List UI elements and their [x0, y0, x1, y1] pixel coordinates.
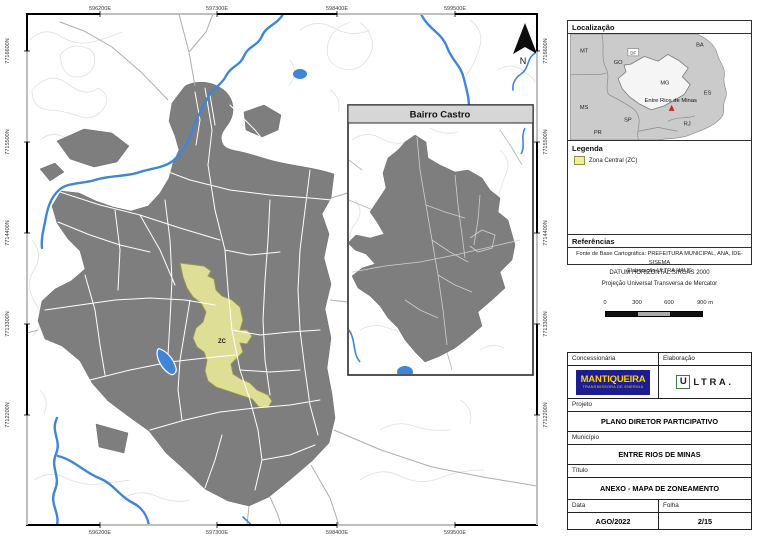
- titulo-value: ANEXO - MAPA DE ZONEAMENTO: [568, 478, 751, 499]
- map-sheet: ZC N Bairro Castro: [0, 0, 768, 543]
- scalebar-tick-0: 0: [603, 300, 606, 306]
- scalebar: [605, 311, 703, 317]
- northing-label: 7715500N: [5, 129, 11, 154]
- northing-label: 7714400N: [5, 220, 11, 245]
- scalebar-tick-600: 600: [664, 300, 674, 306]
- projeto-value: PLANO DIRETOR PARTICIPATIVO: [568, 412, 751, 431]
- easting-label: 599500E: [444, 6, 466, 12]
- state-label-ba: BA: [696, 43, 704, 49]
- state-label-go: GO: [614, 60, 623, 66]
- data-label: Data: [568, 500, 585, 509]
- state-label-mg: MG: [660, 81, 669, 87]
- northing-label: 7714400N: [543, 220, 549, 245]
- state-label-mt: MT: [580, 48, 589, 54]
- northing-label: 7715500N: [543, 129, 549, 154]
- legenda-panel: Legenda Zona Central (ZC): [567, 140, 752, 235]
- mantiqueira-logo-sub: TRANSMISSORA DE ENERGIA: [583, 386, 644, 390]
- state-label-ms: MS: [580, 105, 589, 111]
- legend-item: Zona Central (ZC): [568, 154, 751, 165]
- scalebar-tick-900: 900 m: [697, 300, 713, 306]
- mantiqueira-logo-name: MANTIQUEIRA: [581, 375, 646, 385]
- easting-label: 597300E: [206, 530, 228, 536]
- northing-label: 7713300N: [543, 311, 549, 336]
- legenda-title: Legenda: [568, 141, 751, 154]
- scalebar-segment: [638, 312, 670, 316]
- ultra-logo: U LTRA.: [676, 375, 733, 389]
- northing-label: 7712200N: [543, 402, 549, 427]
- easting-label: 597300E: [206, 6, 228, 12]
- folha-value: 2/15: [659, 517, 751, 526]
- easting-label: 599500E: [444, 530, 466, 536]
- title-block: Concessionária Elaboração MANTIQUEIRA TR…: [567, 352, 752, 530]
- pond: [293, 69, 307, 79]
- easting-label: 596200E: [89, 6, 111, 12]
- state-label-pr: PR: [594, 130, 602, 136]
- northing-label: 7713300N: [5, 311, 11, 336]
- easting-label: 598400E: [326, 530, 348, 536]
- legend-swatch-zona-central: [574, 156, 585, 165]
- northing-label: 7712200N: [5, 402, 11, 427]
- folha-label: Folha: [659, 500, 679, 509]
- north-label: N: [520, 56, 527, 66]
- scalebar-segment: [606, 312, 638, 316]
- scalebar-tick-300: 300: [632, 300, 642, 306]
- state-label-df: DF: [630, 50, 636, 55]
- main-map: ZC N Bairro Castro: [0, 0, 555, 543]
- concessionaria-label: Concessionária: [568, 353, 615, 362]
- elaboracao-label: Elaboração: [659, 353, 695, 362]
- referencias-panel: Referências Fonte de Base Cartográfica: …: [567, 234, 752, 265]
- projeto-label: Projeto: [568, 399, 592, 411]
- localizacao-panel: Localização MT GO DF BA MG ES MS: [567, 20, 752, 141]
- northing-label: 7716600N: [543, 38, 549, 63]
- easting-label: 598400E: [326, 6, 348, 12]
- ultra-logo-u: U: [676, 375, 690, 389]
- state-label-rj: RJ: [684, 121, 691, 127]
- inset-bairro-castro: Bairro Castro: [348, 105, 533, 378]
- easting-label: 596200E: [89, 530, 111, 536]
- datum-line: DATUM HORIZONTAL:SIRGAS 2000: [567, 268, 752, 279]
- northing-label: 7716600N: [5, 38, 11, 63]
- projection-info: DATUM HORIZONTAL:SIRGAS 2000 Projeção Un…: [567, 268, 752, 290]
- referencias-fonte: Fonte de Base Cartográfica: PREFEITURA M…: [568, 250, 751, 267]
- referencias-title: Referências: [568, 235, 751, 248]
- ultra-logo-rest: LTRA.: [693, 377, 733, 388]
- localizacao-title: Localização: [568, 21, 751, 34]
- zone-label: ZC: [218, 339, 227, 345]
- projection-line: Projeção Universal Transversa de Mercato…: [567, 279, 752, 290]
- state-label-sp: SP: [624, 118, 632, 124]
- data-value: AGO/2022: [568, 517, 658, 526]
- municipio-value: ENTRE RIOS DE MINAS: [568, 445, 751, 464]
- legend-label: Zona Central (ZC): [589, 158, 637, 164]
- municipio-label: Município: [568, 432, 599, 444]
- state-label-es: ES: [704, 90, 712, 96]
- scalebar-segment: [670, 312, 702, 316]
- mantiqueira-logo: MANTIQUEIRA TRANSMISSORA DE ENERGIA: [576, 370, 650, 395]
- inset-title: Bairro Castro: [410, 110, 471, 121]
- brazil-states-map: MT GO DF BA MG ES MS SP RJ PR Entre Rios…: [568, 34, 751, 140]
- titulo-label: Título: [568, 465, 588, 477]
- marker-label: Entre Rios de Minas: [644, 98, 697, 104]
